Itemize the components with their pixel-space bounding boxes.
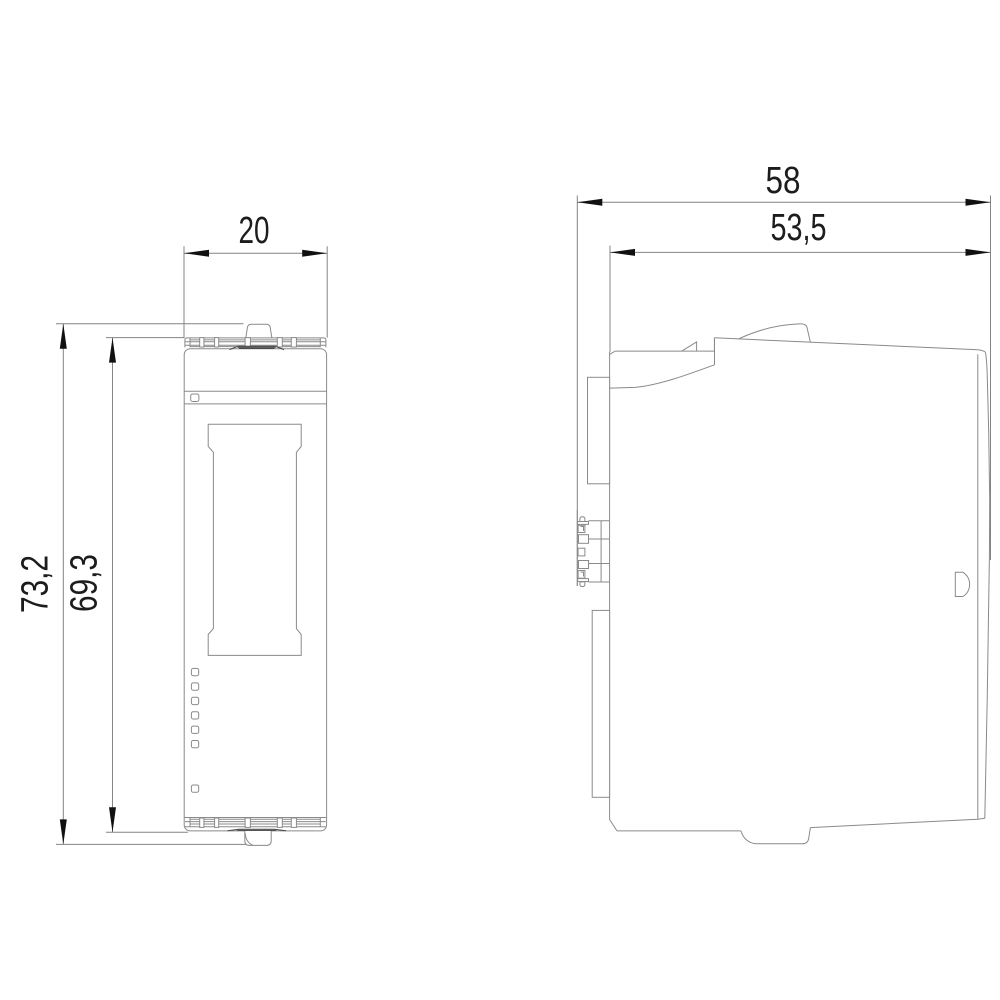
svg-text:20: 20 xyxy=(239,210,270,252)
svg-text:58: 58 xyxy=(766,160,801,202)
svg-text:53,5: 53,5 xyxy=(771,207,827,249)
svg-text:73,2: 73,2 xyxy=(15,555,57,613)
svg-text:69,3: 69,3 xyxy=(64,554,106,612)
